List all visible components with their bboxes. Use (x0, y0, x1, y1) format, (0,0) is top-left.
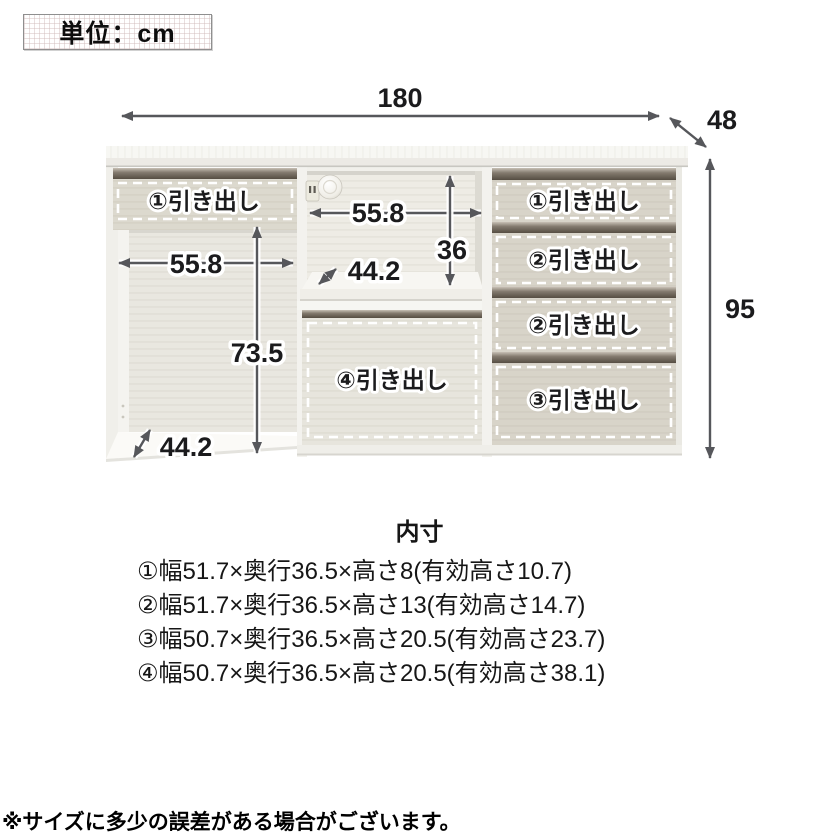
spec-line-4: ④幅50.7×奥行36.5×高さ20.5(有効高さ38.1) (137, 657, 702, 691)
dimension-label-left-inner-height: 73.5 (231, 338, 284, 368)
dimension-arrow-depth: 48 (670, 105, 737, 147)
right-drawer1-label: ①引き出し (528, 188, 639, 214)
dimension-label-left-depth: 44.2 (160, 432, 213, 462)
middle-drawer-rail (302, 310, 482, 318)
spec-line-1: ①幅51.7×奥行36.5×高さ8(有効高さ10.7) (137, 555, 702, 589)
furniture-diagram: 180 48 95 55.8 73.5 44.2 (0, 0, 830, 830)
spec-line-2: ②幅51.7×奥行36.5×高さ13(有効高さ14.7) (137, 589, 702, 623)
left-drawer-label: ①引き出し (148, 188, 259, 214)
note-text: ※サイズに多少の誤差がある場合がございます。 (2, 806, 461, 836)
dimension-arrow-width: 180 (122, 83, 659, 116)
page: { "unit_box": { "label": "単位：cm" }, "dia… (0, 0, 830, 830)
right-side-panel (676, 167, 682, 455)
right-drawer4-label: ③引き出し (528, 387, 639, 413)
left-drawer-rail (113, 168, 297, 179)
middle-drawer-label: ④引き出し (336, 367, 447, 393)
specs-block: 内寸 ①幅51.7×奥行36.5×高さ8(有効高さ10.7) ②幅51.7×奥行… (137, 512, 702, 691)
right-drawer3-label: ②引き出し (528, 312, 639, 338)
dimension-label-depth: 48 (707, 105, 737, 135)
specs-title: 内寸 (137, 512, 702, 555)
right-drawer2-label: ②引き出し (528, 247, 639, 273)
dimension-label-height: 95 (725, 294, 755, 324)
dimension-label-left-inner-width: 55.8 (170, 249, 223, 279)
dimension-label-middle-inner-width: 55.8 (352, 198, 405, 228)
dimension-label-width: 180 (377, 83, 422, 113)
dimension-label-middle-depth: 44.2 (348, 256, 401, 286)
dimension-label-middle-inner-height: 36 (437, 235, 467, 265)
divider-middle-right (482, 167, 492, 457)
counter-top (106, 146, 688, 167)
spec-line-3: ③幅50.7×奥行36.5×高さ20.5(有効高さ23.7) (137, 623, 702, 657)
dimension-arrow-height: 95 (710, 159, 755, 458)
